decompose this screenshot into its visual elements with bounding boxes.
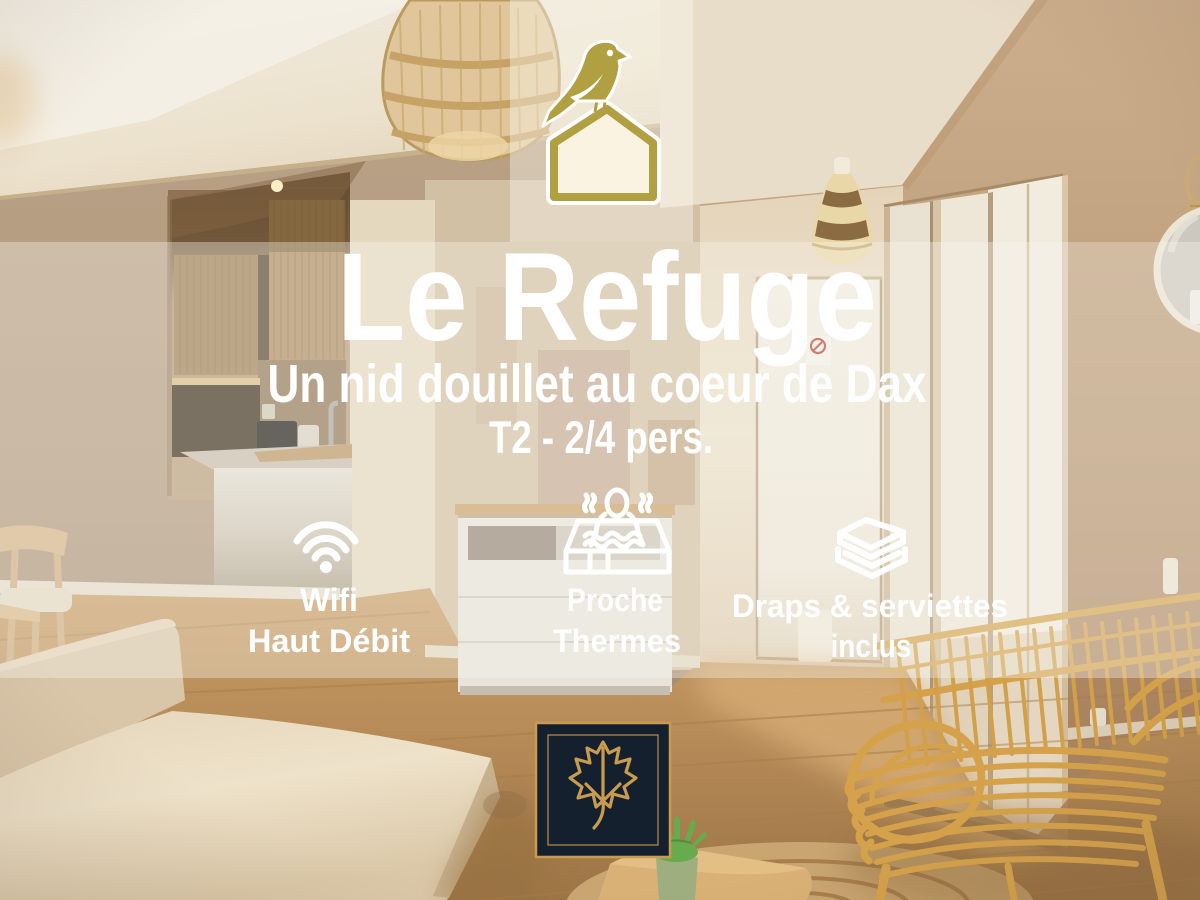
svg-text:Thermes: Thermes — [553, 623, 681, 659]
svg-text:Haut Débit: Haut Débit — [248, 623, 410, 659]
svg-text:Proche: Proche — [567, 582, 663, 618]
svg-text:inclus: inclus — [831, 628, 912, 664]
svg-text:Le Refuge: Le Refuge — [337, 228, 877, 367]
svg-text:T2 - 2/4 pers.: T2 - 2/4 pers. — [489, 412, 713, 463]
svg-text:Draps & serviettes: Draps & serviettes — [732, 588, 1008, 624]
svg-text:Un nid douillet au coeur de Da: Un nid douillet au coeur de Dax — [268, 354, 927, 414]
svg-text:Wifi: Wifi — [300, 582, 358, 618]
